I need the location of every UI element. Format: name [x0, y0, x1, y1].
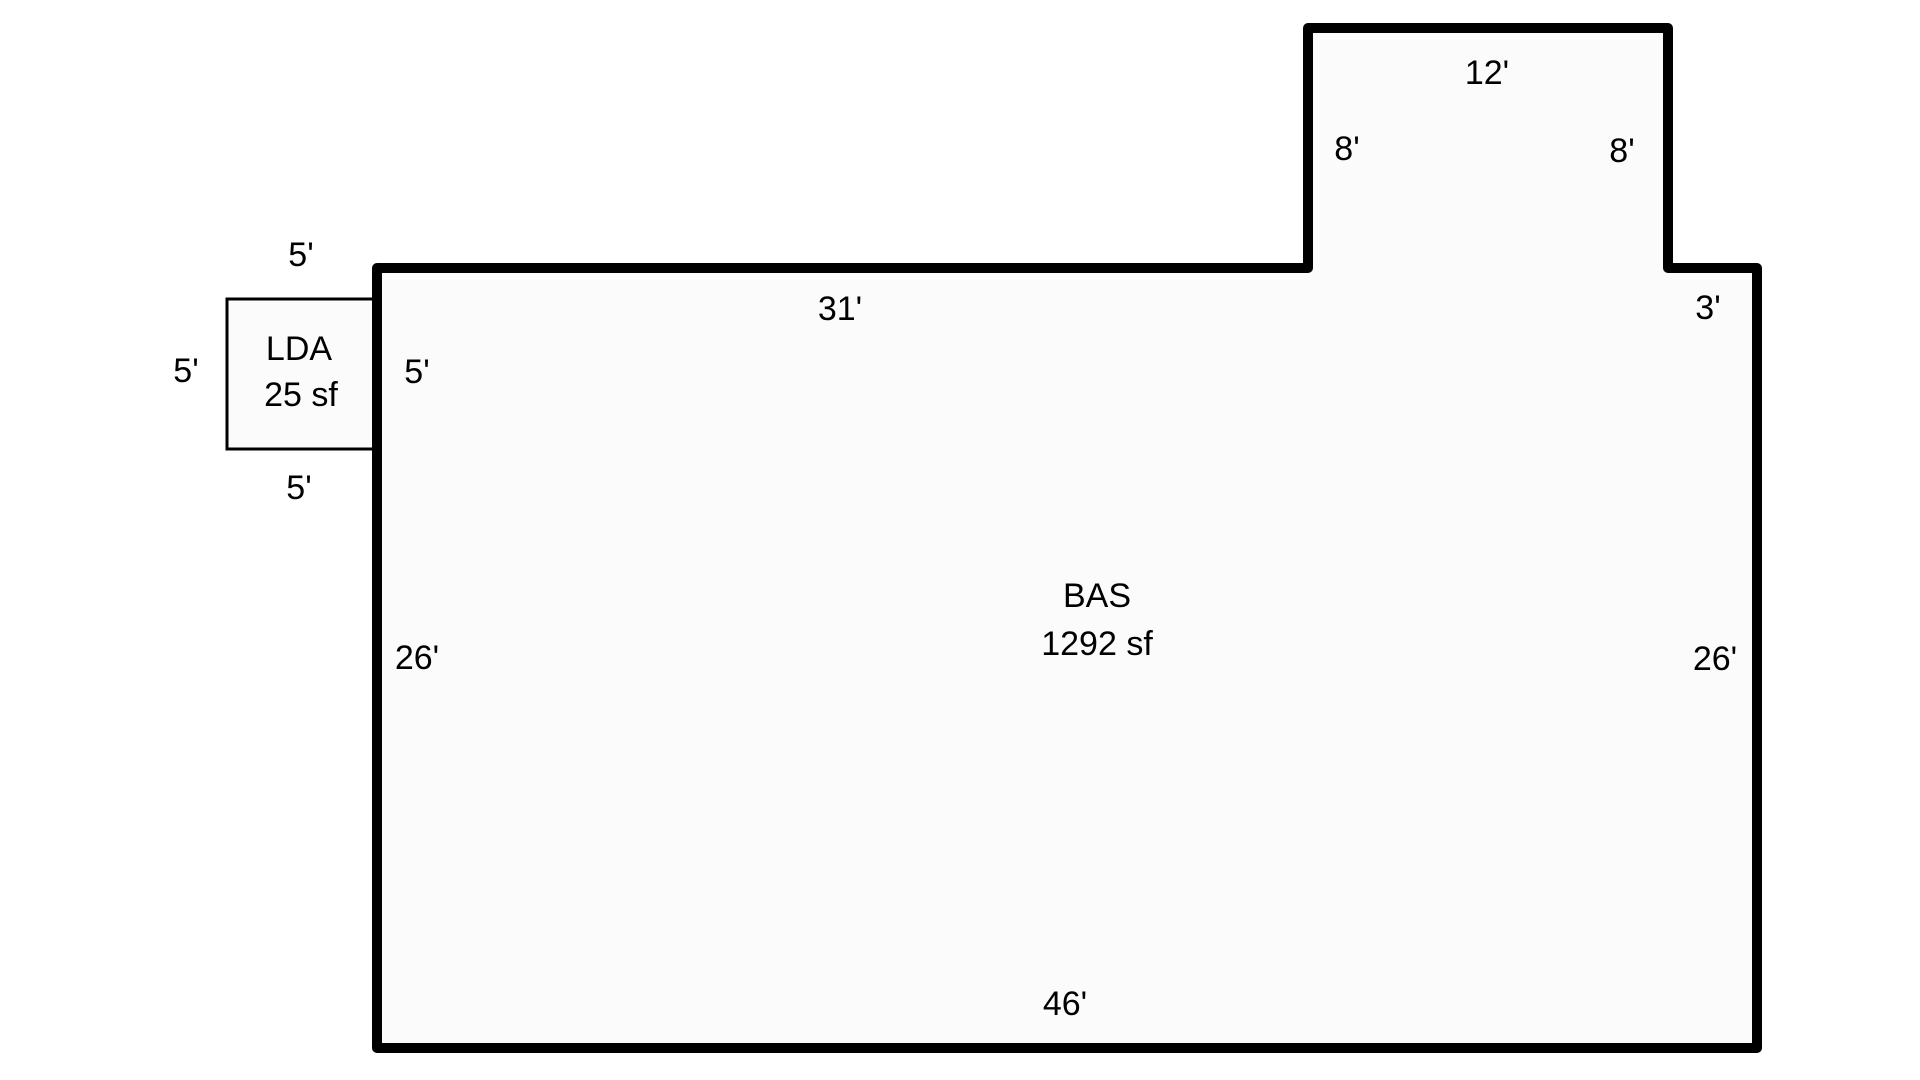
dim-bottom-wall-label: 46': [1043, 985, 1087, 1023]
dim-top-wall-label: 31': [818, 290, 862, 328]
dim-right-wall-label: 26': [1693, 640, 1737, 678]
dim-bump-top-label: 12': [1465, 54, 1509, 92]
dim-left-wall-label: 26': [395, 639, 439, 677]
dim-bump-right-label: 8': [1609, 132, 1634, 170]
floor-plan-sketch: 12' 8' 8' 31' 3' 5' 5' 5' 5' LDA 25 sf B…: [0, 0, 1920, 1080]
bas-area-outline: [377, 28, 1757, 1048]
bas-area-code: BAS: [1063, 577, 1131, 615]
lda-area-size: 25 sf: [264, 376, 338, 414]
lda-area-outline: [227, 299, 377, 449]
dim-right-step-label: 3': [1695, 289, 1720, 327]
dim-lda-left-label: 5': [173, 352, 198, 390]
dim-lda-top-label: 5': [288, 236, 313, 274]
sketch-canvas: 12' 8' 8' 31' 3' 5' 5' 5' 5' LDA 25 sf B…: [0, 0, 1920, 1080]
dim-bump-left-label: 8': [1334, 130, 1359, 168]
dim-lda-right-inner-label: 5': [404, 353, 429, 391]
dim-lda-bottom-label: 5': [286, 469, 311, 507]
bas-area-size: 1292 sf: [1041, 625, 1153, 663]
lda-area-code: LDA: [266, 330, 332, 368]
